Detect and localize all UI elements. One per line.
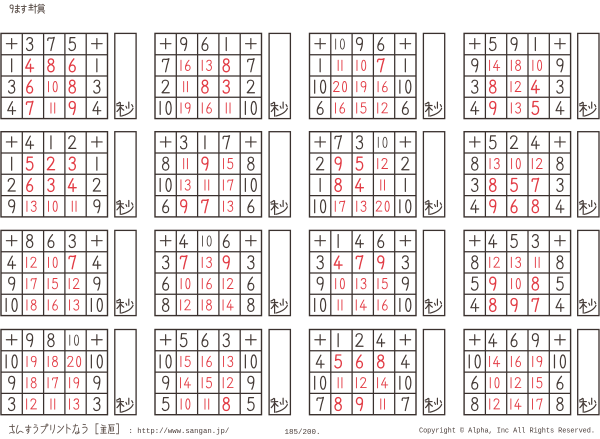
svg-text:: http://www.sangan.jp/: : http://www.sangan.jp/ xyxy=(129,428,230,436)
svg-text:185/200.: 185/200. xyxy=(285,429,321,437)
svg-text:Copyright © Alpha, Inc All Rig: Copyright © Alpha, Inc All Rights Reserv… xyxy=(419,427,595,436)
